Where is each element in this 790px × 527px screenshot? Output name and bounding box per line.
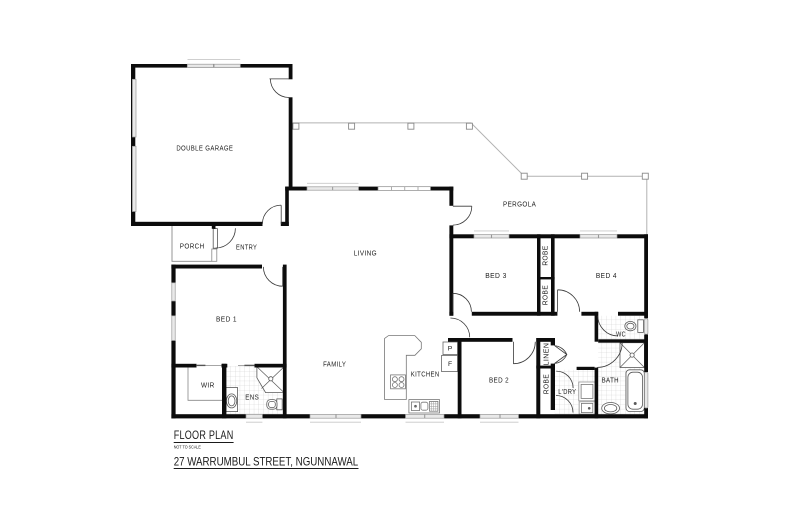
- svg-text:WIR: WIR: [201, 381, 215, 390]
- svg-text:WC: WC: [616, 330, 626, 339]
- svg-text:P: P: [448, 346, 453, 353]
- svg-text:ROBE: ROBE: [541, 285, 550, 305]
- svg-text:ENTRY: ENTRY: [236, 242, 257, 251]
- svg-text:F: F: [448, 361, 453, 368]
- svg-text:BED 1: BED 1: [216, 315, 237, 324]
- svg-text:NOT TO SCALE: NOT TO SCALE: [174, 444, 201, 449]
- svg-text:BATH: BATH: [602, 376, 619, 385]
- svg-text:FLOOR PLAN: FLOOR PLAN: [174, 429, 234, 442]
- svg-text:PORCH: PORCH: [180, 241, 205, 250]
- svg-text:BED 2: BED 2: [489, 375, 509, 384]
- svg-text:ENS: ENS: [245, 392, 259, 401]
- svg-text:ROBE: ROBE: [541, 374, 550, 394]
- svg-text:ROBE: ROBE: [541, 245, 550, 265]
- svg-text:FAMILY: FAMILY: [323, 359, 346, 368]
- svg-text:DOUBLE GARAGE: DOUBLE GARAGE: [176, 144, 233, 153]
- svg-text:PERGOLA: PERGOLA: [503, 199, 536, 208]
- svg-text:L'DRY: L'DRY: [558, 387, 576, 396]
- svg-text:27 WARRUMBUL STREET, NGUNNAWAL: 27 WARRUMBUL STREET, NGUNNAWAL: [174, 455, 359, 469]
- svg-text:BED 4: BED 4: [596, 271, 617, 280]
- svg-text:LINEN: LINEN: [541, 343, 550, 366]
- svg-text:KITCHEN: KITCHEN: [411, 370, 440, 379]
- svg-text:LIVING: LIVING: [354, 248, 377, 257]
- svg-text:BED 3: BED 3: [485, 271, 507, 280]
